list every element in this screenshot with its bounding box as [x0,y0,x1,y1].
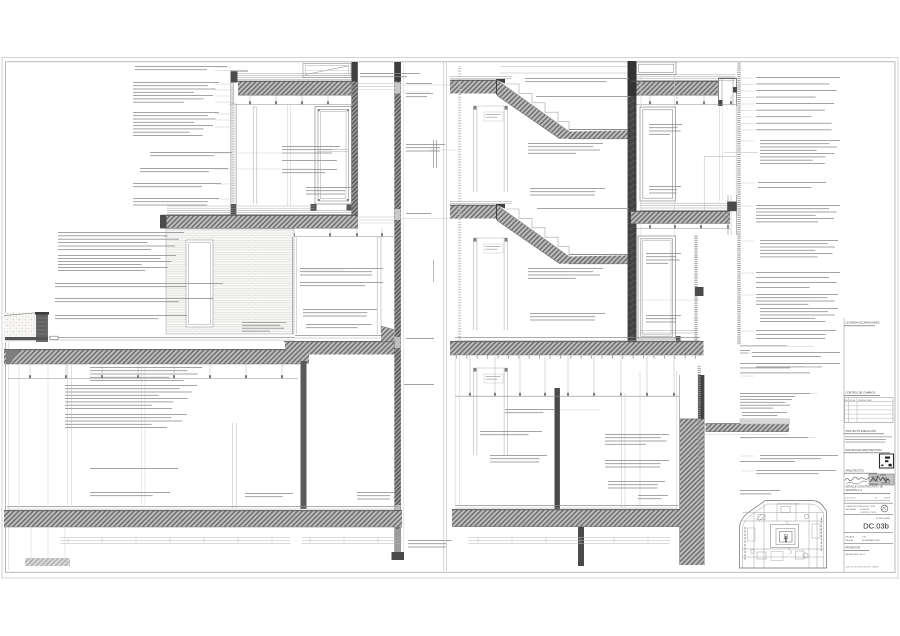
svg-text:Nº DE PLANO: Nº DE PLANO [876,517,890,520]
svg-text:DETALLE CONSTRUCTIVO - 3b: DETALLE CONSTRUCTIVO - 3b [846,484,884,488]
svg-text:CALLE DE LAS TRES CRUCES 7, MA: CALLE DE LAS TRES CRUCES 7, MADRID [846,566,880,569]
svg-text:DETALLES: DETALLES [860,508,870,511]
svg-text:CAJONERA: CAJONERA [846,508,857,511]
svg-text:ESCALA:: ESCALA: [846,536,855,539]
svg-text:CLASIFICACIÓN: CLASIFICACIÓN [846,505,861,508]
svg-text:ARQUITECTURA: ARQUITECTURA [860,505,876,508]
svg-text:PROMOTOR: PROMOTOR [846,547,861,550]
svg-text:BIFURQUED, S.L.U.: BIFURQUED, S.L.U. [846,554,867,556]
svg-text:NOVIEMBRE 2009: NOVIEMBRE 2009 [862,540,881,542]
svg-text:ESTUDIO DE ARQUITECTURA: ESTUDIO DE ARQUITECTURA [846,448,883,452]
svg-text:FECHA:: FECHA: [846,539,854,542]
svg-text:LEYENDA ACLARACIONES: LEYENDA ACLARACIONES [846,321,880,325]
svg-text:CONSTRUCTIVOS: CONSTRUCTIVOS [860,512,877,514]
svg-text:15,0m: 15,0m [884,497,890,499]
svg-text:ARQUITECTOS: ARQUITECTOS [846,468,865,472]
svg-text:CONTROL DE CAMBIOS: CONTROL DE CAMBIOS [846,391,876,395]
svg-text:0 1 2 3 4 5: 0 1 2 3 4 5 [845,497,856,499]
svg-text:DC.03b: DC.03b [863,522,889,531]
